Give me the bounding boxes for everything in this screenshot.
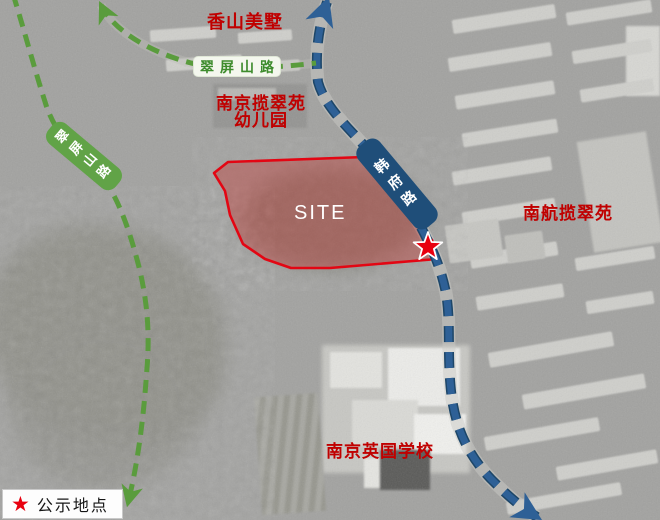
cuipingshan-vertical-route-path [13,0,148,503]
cuipingshan-horizontal-route-path [101,5,316,68]
map-canvas: 香山美墅 翠屏山路 南京揽翠苑 幼儿园 翠屏山路 韩府路 SITE 南航揽翠苑 … [0,0,660,520]
legend-label: 公示地点 [37,492,109,516]
site-boundary-polygon [214,157,437,268]
route-overlay [0,0,660,520]
legend: ★ 公示地点 [2,489,123,519]
legend-star-icon: ★ [11,494,30,515]
